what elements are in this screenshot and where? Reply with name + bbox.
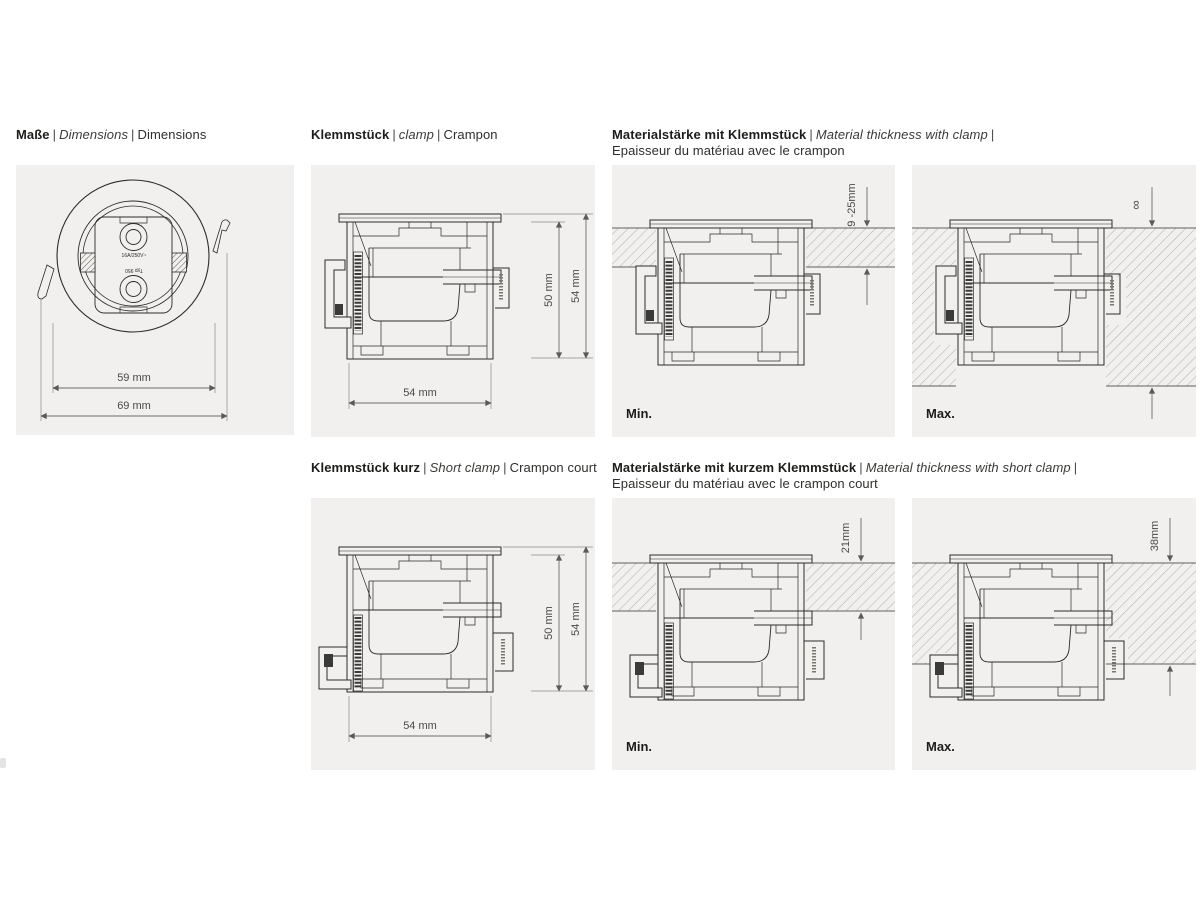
panel-material-short-clamp-min: 21mm Min. <box>612 498 895 770</box>
title-separator: | <box>806 127 815 142</box>
right-contact-tab <box>172 253 187 272</box>
min-caption: Min. <box>626 406 652 421</box>
short-clamp-side-drawing: 50 mm 54 mm 54 mm <box>311 498 595 770</box>
socket-side-view-short-clamp <box>319 547 513 692</box>
socket-side-view-clamp <box>325 214 509 359</box>
title-separator: | <box>50 127 59 142</box>
material-clamp-min-drawing: 9 -25mm Min. <box>612 165 895 437</box>
thickness-label: 21mm <box>840 523 852 554</box>
dimension-width-54mm: 54 mm <box>349 363 491 409</box>
title-fr: Crampon <box>443 127 497 142</box>
title-de: Klemmstück <box>311 127 389 142</box>
dim-width-label: 54 mm <box>403 387 437 399</box>
right-clamp-wing <box>213 220 230 253</box>
thickness-label: ∞ <box>1128 200 1143 209</box>
section-title-dimensions: Maße|Dimensions|Dimensions <box>16 127 206 143</box>
max-caption: Max. <box>926 406 955 421</box>
title-separator: | <box>128 127 137 142</box>
title-separator: | <box>500 460 509 475</box>
dim-width-label: 54 mm <box>403 720 437 732</box>
title-fr: Epaisseur du matériau avec le crampon <box>612 143 845 158</box>
max-caption: Max. <box>926 739 955 754</box>
front-view-drawing: 16A/250V~ Typ 950 59 mm 69 mm <box>16 165 294 435</box>
dim-total-height-label: 54 mm <box>570 602 582 636</box>
title-separator: | <box>1071 460 1080 475</box>
type-label: Typ 950 <box>125 267 143 273</box>
panel-clamp-side-view: 50 mm 54 mm 54 mm <box>311 165 595 437</box>
panel-front-view: 16A/250V~ Typ 950 59 mm 69 mm <box>16 165 294 435</box>
material-clamp-max-drawing: ∞ Max. <box>912 165 1196 437</box>
thickness-label: 38mm <box>1149 521 1161 552</box>
panel-material-clamp-max: ∞ Max. <box>912 165 1196 437</box>
title-en: clamp <box>399 127 434 142</box>
material-short-clamp-max-drawing: 38mm Max. <box>912 498 1196 770</box>
edge-artifact <box>0 758 6 768</box>
title-en: Dimensions <box>59 127 128 142</box>
dim-outer-label: 69 mm <box>117 400 151 412</box>
title-en: Material thickness with clamp <box>816 127 988 142</box>
dimension-69mm: 69 mm <box>41 253 227 421</box>
material-short-clamp-min-drawing: 21mm Min. <box>612 498 895 770</box>
panel-short-clamp-side-view: 50 mm 54 mm 54 mm <box>311 498 595 770</box>
title-separator: | <box>389 127 398 142</box>
min-caption: Min. <box>626 739 652 754</box>
panel-material-clamp-min: 9 -25mm Min. <box>612 165 895 437</box>
section-title-material-clamp: Materialstärke mit Klemmstück|Material t… <box>612 127 997 159</box>
title-fr: Dimensions <box>138 127 207 142</box>
dim-inner-height-label: 50 mm <box>543 273 555 307</box>
left-contact-tab <box>81 253 96 272</box>
thickness-label: 9 -25mm <box>846 183 858 226</box>
title-separator: | <box>988 127 997 142</box>
section-title-short-clamp: Klemmstück kurz|Short clamp|Crampon cour… <box>311 460 597 476</box>
dimension-59mm: 59 mm <box>53 323 215 393</box>
dim-total-height-label: 54 mm <box>570 269 582 303</box>
title-de: Maße <box>16 127 50 142</box>
title-en: Short clamp <box>430 460 500 475</box>
title-separator: | <box>420 460 429 475</box>
left-clamp-wing <box>38 265 54 299</box>
section-title-clamp: Klemmstück|clamp|Crampon <box>311 127 498 143</box>
section-title-material-short-clamp: Materialstärke mit kurzem Klemmstück|Mat… <box>612 460 1080 492</box>
title-de: Materialstärke mit Klemmstück <box>612 127 806 142</box>
dimension-height-50mm: 50 mm <box>531 555 593 691</box>
rating-label: 16A/250V~ <box>122 253 147 259</box>
dim-inner-height-label: 50 mm <box>543 606 555 640</box>
dimension-width-54mm: 54 mm <box>349 696 491 742</box>
panel-material-short-clamp-max: 38mm Max. <box>912 498 1196 770</box>
title-separator: | <box>856 460 865 475</box>
title-de: Klemmstück kurz <box>311 460 420 475</box>
dim-inner-label: 59 mm <box>117 372 151 384</box>
title-de: Materialstärke mit kurzem Klemmstück <box>612 460 856 475</box>
title-fr: Crampon court <box>510 460 597 475</box>
title-fr: Epaisseur du matériau avec le crampon co… <box>612 476 878 491</box>
clamp-side-drawing: 50 mm 54 mm 54 mm <box>311 165 595 437</box>
title-en: Material thickness with short clamp <box>866 460 1071 475</box>
dimension-height-50mm: 50 mm <box>531 222 593 358</box>
